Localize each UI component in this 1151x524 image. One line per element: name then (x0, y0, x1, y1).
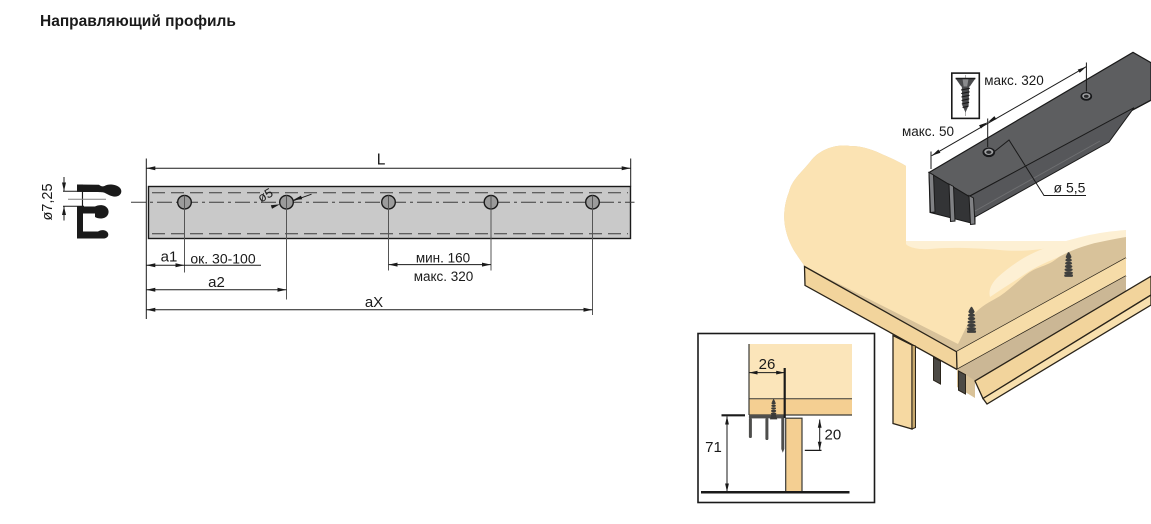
svg-text:26: 26 (759, 356, 776, 373)
svg-text:макс. 320: макс. 320 (414, 269, 474, 284)
svg-text:a1: a1 (161, 248, 178, 265)
svg-text:L: L (377, 152, 386, 169)
svg-text:71: 71 (705, 439, 722, 456)
svg-text:макс. 320: макс. 320 (984, 73, 1044, 88)
svg-text:ø 5,5: ø 5,5 (1054, 180, 1086, 196)
svg-text:Направляющий профиль: Направляющий профиль (40, 13, 236, 30)
svg-text:aX: aX (365, 294, 383, 311)
svg-text:мин. 160: мин. 160 (416, 250, 470, 265)
svg-text:a2: a2 (208, 274, 225, 291)
svg-text:ок. 30-100: ок. 30-100 (190, 251, 255, 267)
svg-text:макс. 50: макс. 50 (902, 124, 954, 139)
svg-text:ø7,25: ø7,25 (40, 183, 56, 220)
svg-text:20: 20 (825, 427, 842, 444)
